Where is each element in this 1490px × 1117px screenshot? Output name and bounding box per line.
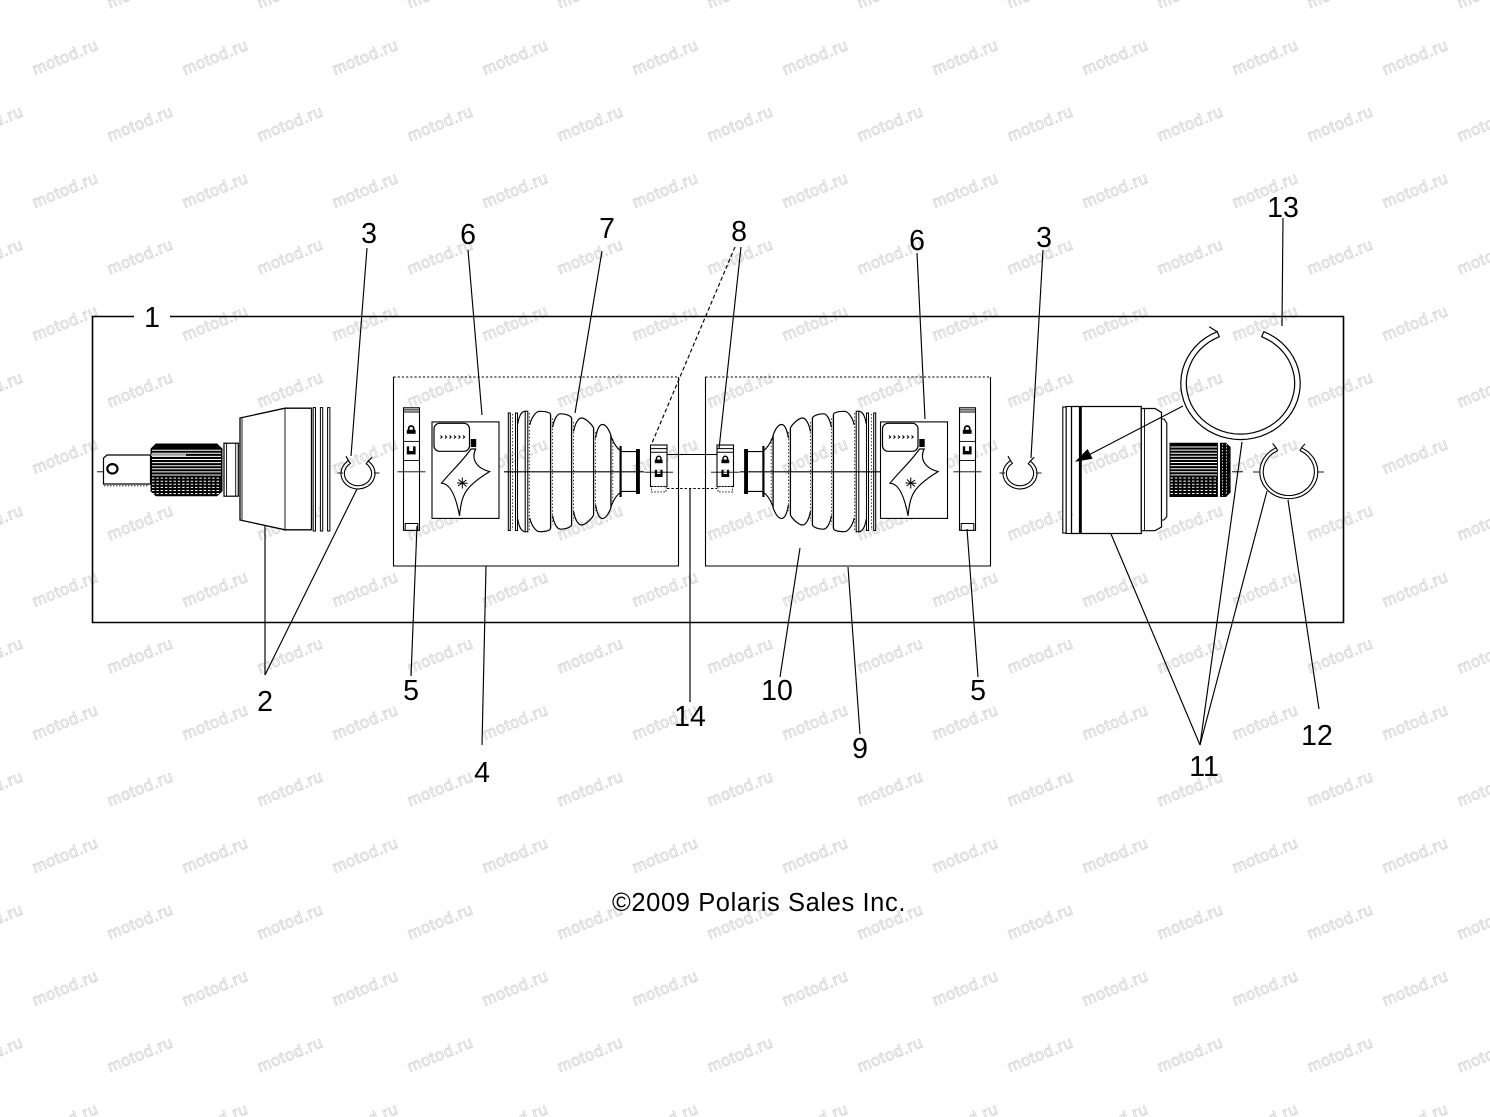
svg-text:6: 6 — [460, 219, 476, 251]
svg-text:14: 14 — [674, 701, 706, 733]
svg-text:3: 3 — [1036, 222, 1052, 254]
svg-text:4: 4 — [474, 757, 490, 789]
svg-text:7: 7 — [599, 213, 615, 245]
svg-text:1: 1 — [144, 302, 160, 334]
svg-text:10: 10 — [761, 675, 793, 707]
svg-text:13: 13 — [1267, 192, 1299, 224]
svg-text:2: 2 — [257, 686, 273, 718]
svg-text:3: 3 — [361, 218, 377, 250]
svg-text:©2009 Polaris Sales Inc.: ©2009 Polaris Sales Inc. — [612, 889, 906, 917]
svg-text:9: 9 — [852, 733, 868, 765]
svg-text:5: 5 — [403, 675, 419, 707]
svg-text:12: 12 — [1301, 720, 1333, 752]
svg-text:6: 6 — [909, 225, 925, 257]
svg-text:11: 11 — [1189, 751, 1219, 783]
svg-text:8: 8 — [731, 216, 747, 248]
svg-text:5: 5 — [970, 675, 986, 707]
